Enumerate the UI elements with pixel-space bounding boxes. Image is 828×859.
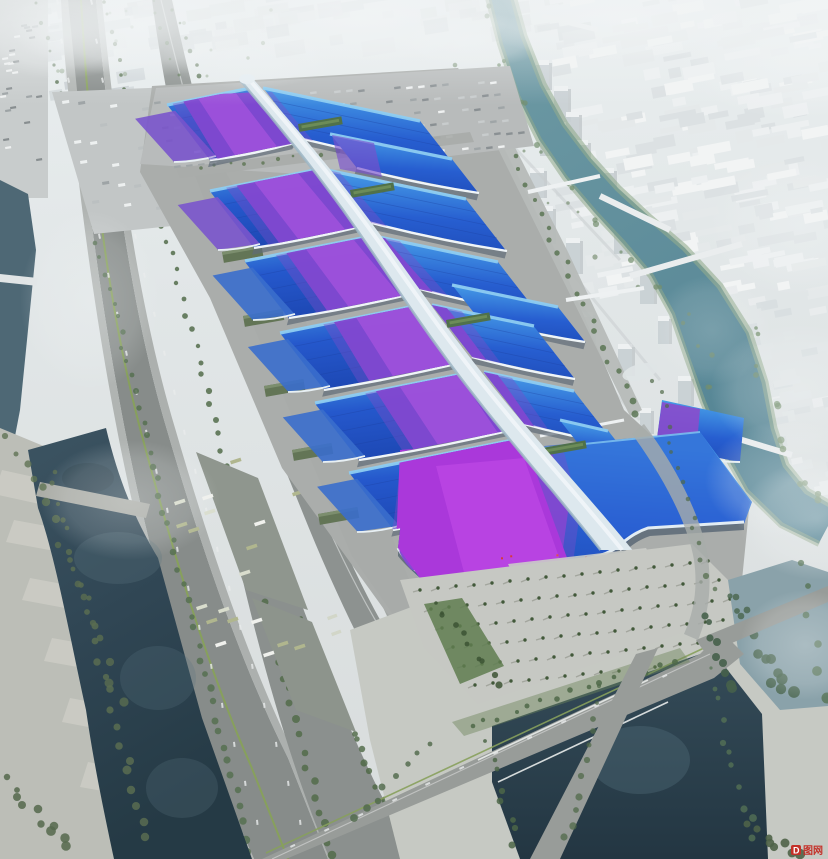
svg-text:图网: 图网	[803, 845, 823, 857]
svg-text:D: D	[793, 846, 800, 856]
